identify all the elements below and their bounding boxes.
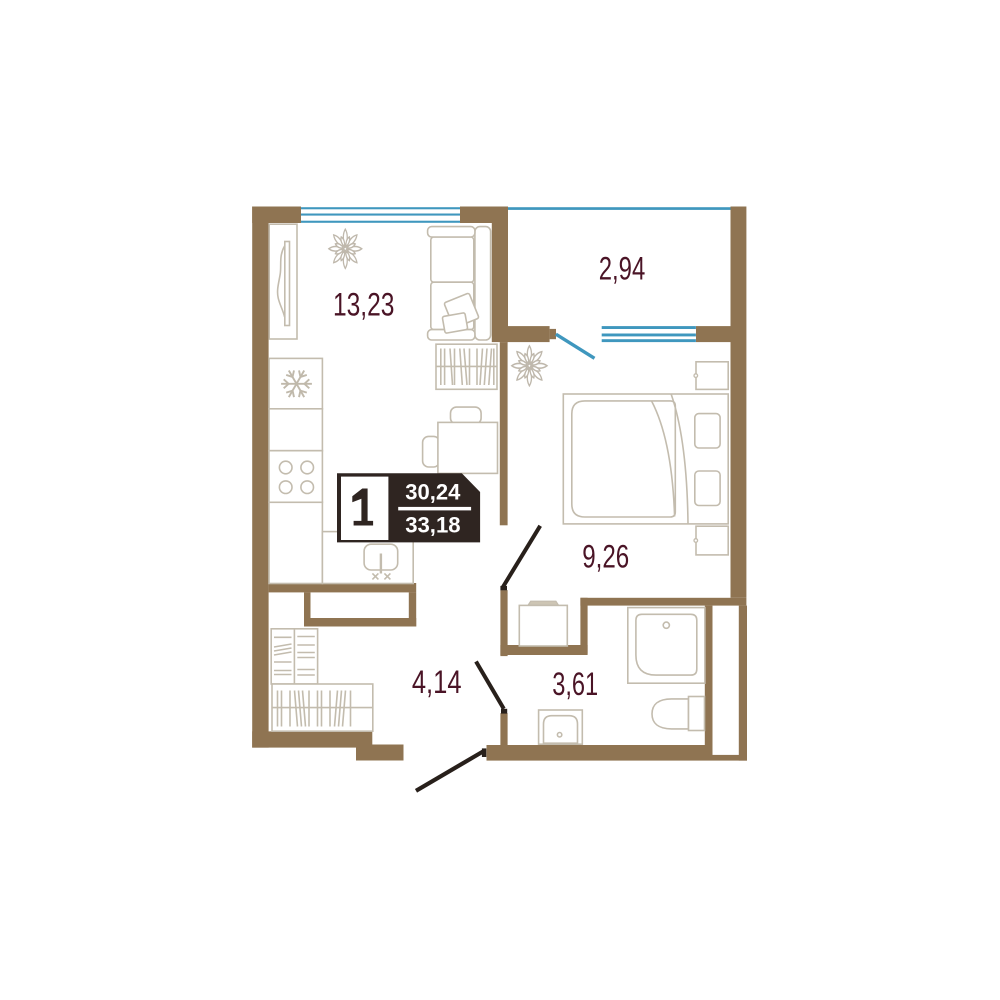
svg-text:4,14: 4,14 xyxy=(412,664,462,700)
svg-text:9,26: 9,26 xyxy=(582,539,629,575)
svg-text:13,23: 13,23 xyxy=(333,287,395,323)
svg-text:2,94: 2,94 xyxy=(599,251,646,287)
svg-text:33,18: 33,18 xyxy=(405,513,460,538)
svg-text:30,24: 30,24 xyxy=(405,479,461,504)
svg-text:3,61: 3,61 xyxy=(552,666,598,702)
